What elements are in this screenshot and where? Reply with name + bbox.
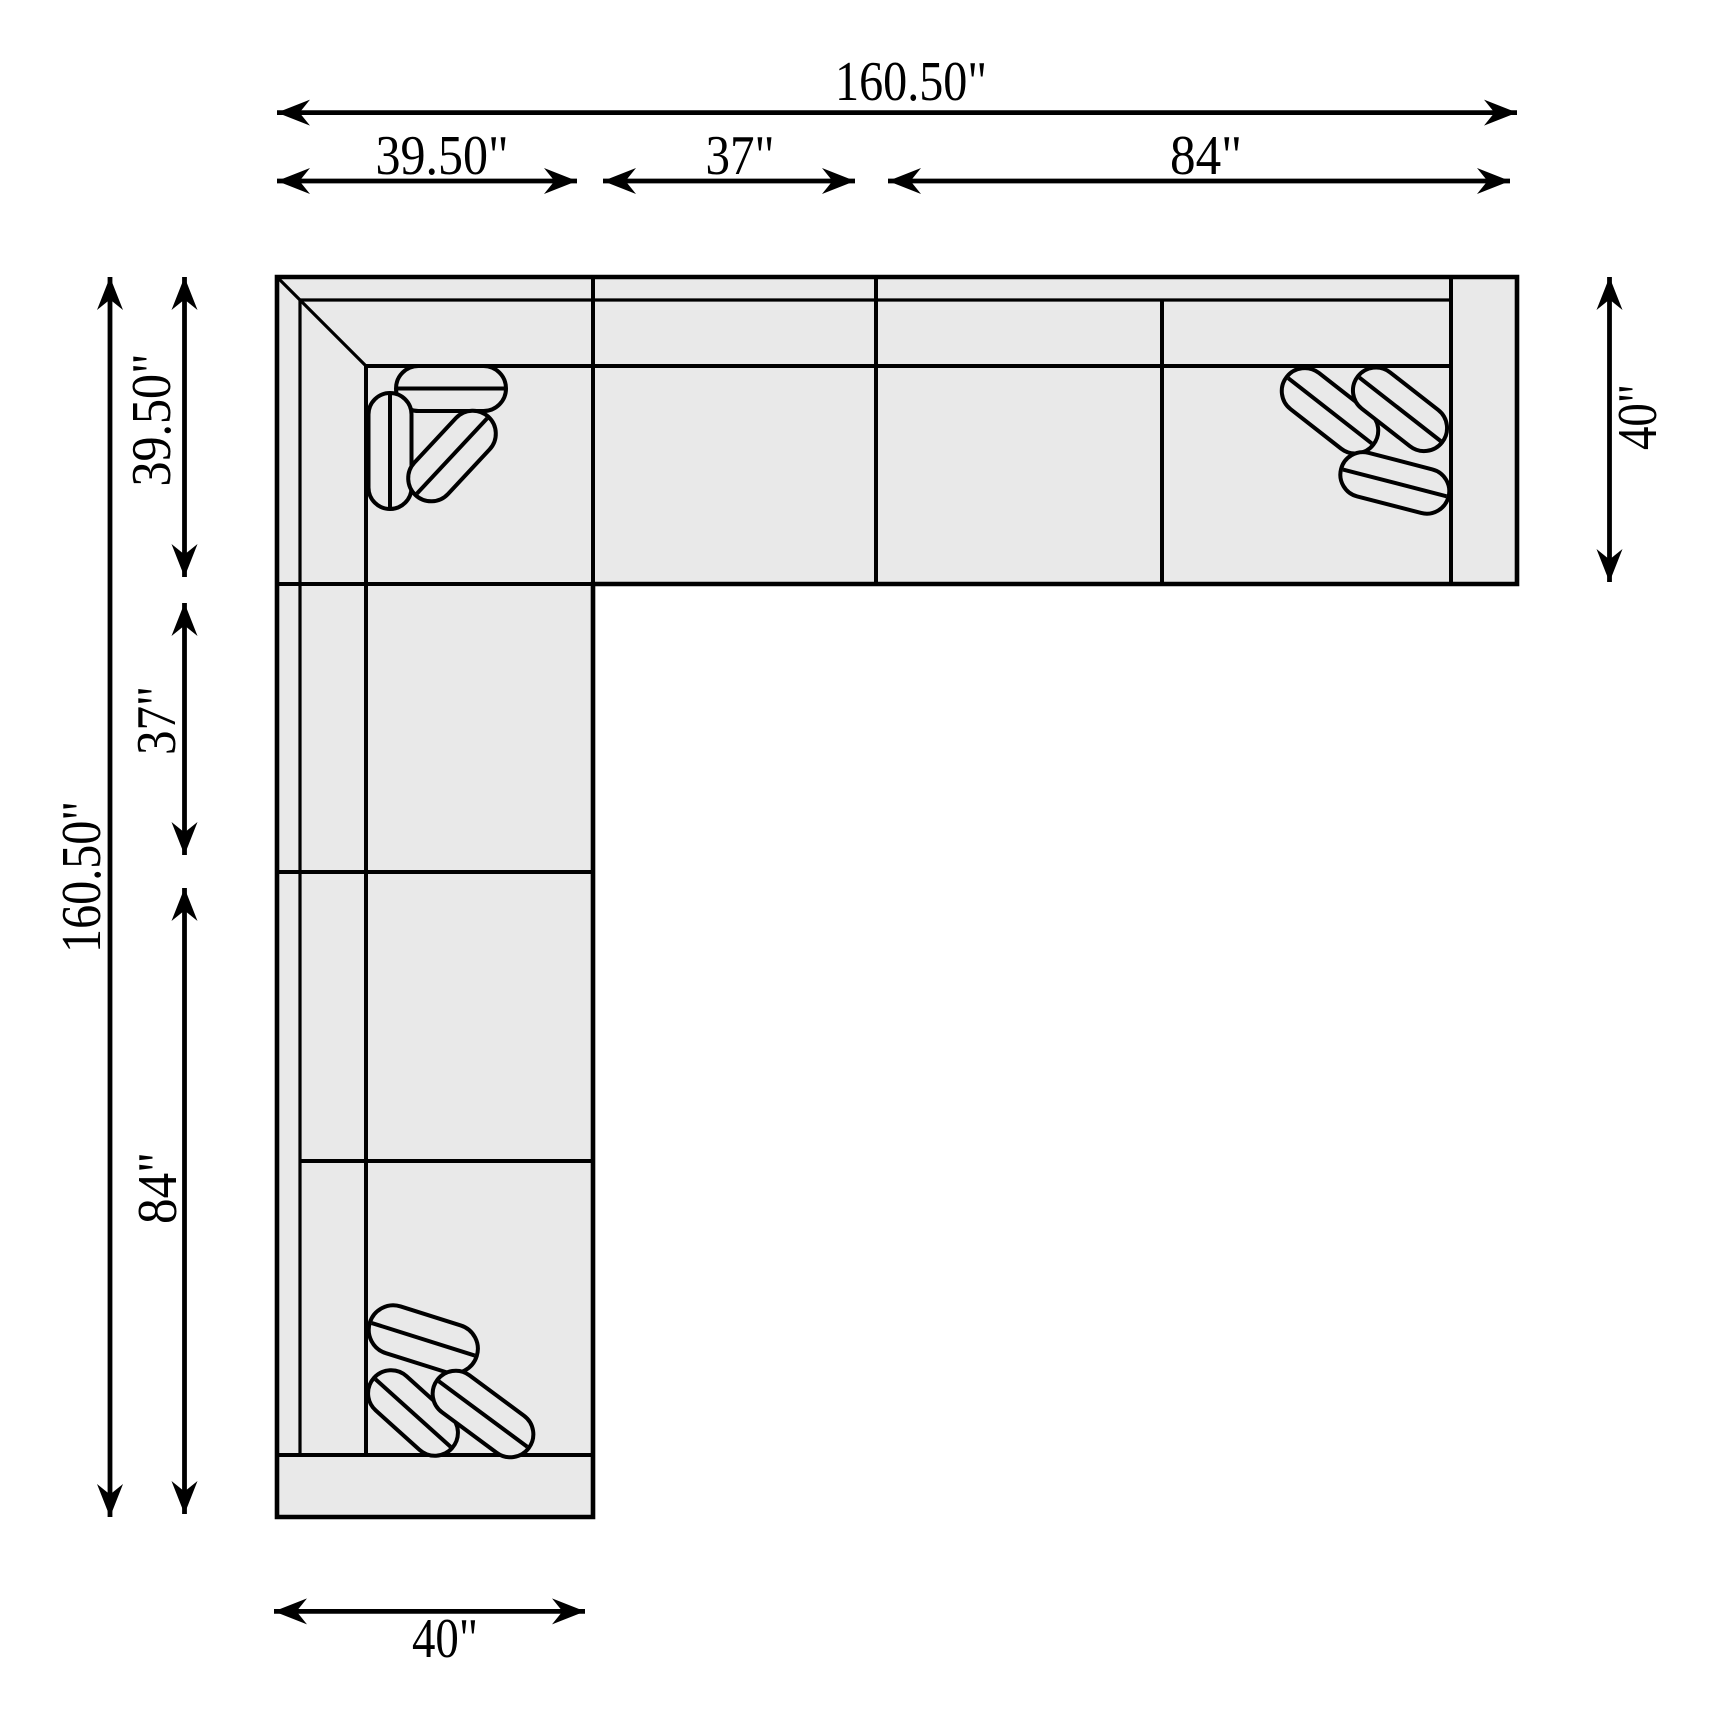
svg-text:40": 40" xyxy=(1607,384,1669,450)
svg-text:39.50": 39.50" xyxy=(121,354,183,487)
svg-text:84": 84" xyxy=(1170,125,1242,187)
svg-text:39.50": 39.50" xyxy=(376,125,509,187)
svg-text:40": 40" xyxy=(412,1608,478,1670)
svg-text:160.50": 160.50" xyxy=(51,801,113,953)
svg-text:84": 84" xyxy=(127,1152,189,1224)
svg-text:160.50": 160.50" xyxy=(835,51,987,113)
svg-text:37": 37" xyxy=(706,125,775,187)
svg-text:37": 37" xyxy=(126,686,188,755)
